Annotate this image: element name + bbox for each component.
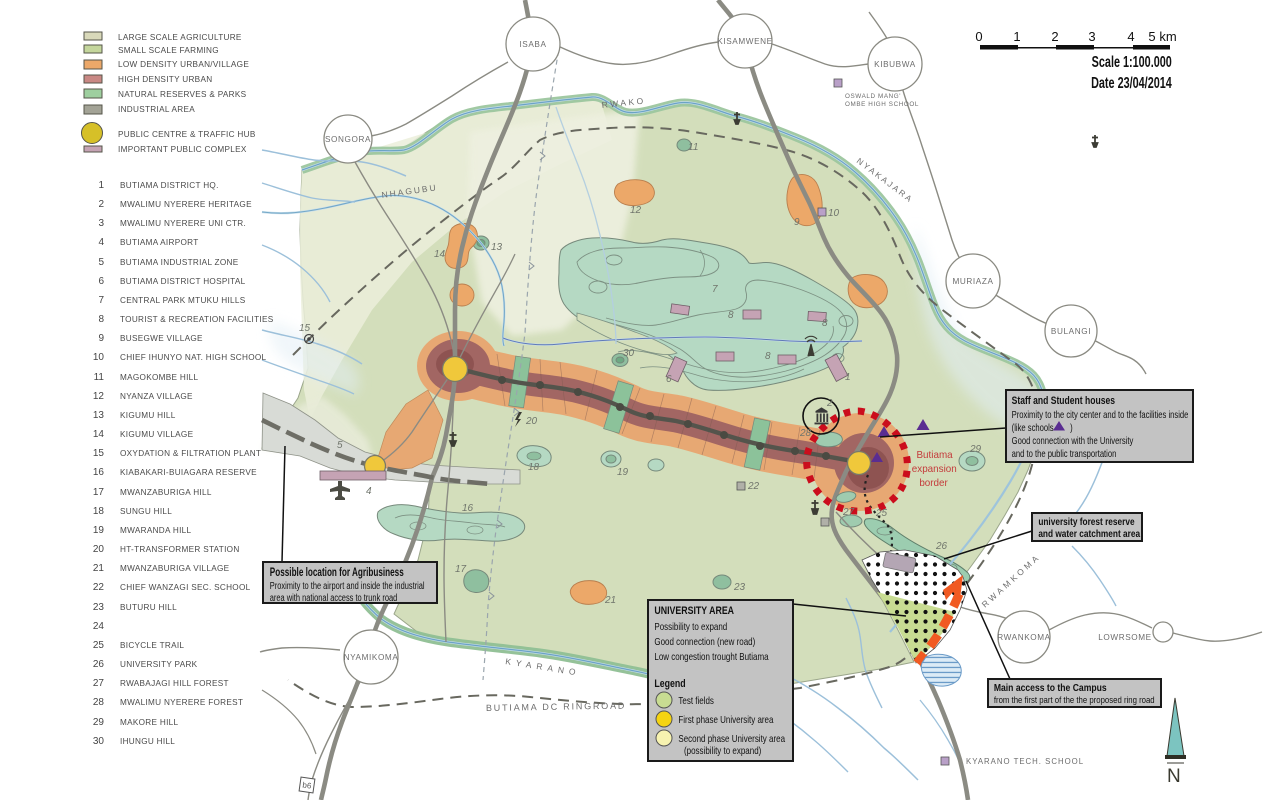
svg-text:BUTIAMA INDUSTRIAL ZONE: BUTIAMA INDUSTRIAL ZONE: [120, 258, 239, 267]
svg-text:0: 0: [975, 29, 982, 44]
svg-text:13: 13: [491, 242, 503, 253]
svg-text:BUTIAMA AIRPORT: BUTIAMA AIRPORT: [120, 238, 199, 247]
svg-text:20: 20: [93, 544, 105, 555]
svg-text:TOURIST & RECREATION FACILITIE: TOURIST & RECREATION FACILITIES: [120, 315, 274, 324]
svg-text:1: 1: [98, 180, 104, 191]
svg-text:17: 17: [93, 487, 105, 498]
svg-text:SONGORA: SONGORA: [325, 135, 371, 144]
svg-text:16: 16: [93, 467, 105, 478]
svg-text:25: 25: [875, 508, 888, 519]
svg-text:Date 23/04/2014: Date 23/04/2014: [1091, 74, 1172, 91]
svg-text:MAKORE HILL: MAKORE HILL: [120, 718, 179, 727]
svg-text:PUBLIC CENTRE & TRAFFIC HUB: PUBLIC CENTRE & TRAFFIC HUB: [118, 130, 256, 139]
svg-text:Good connection (new road): Good connection (new road): [654, 636, 755, 647]
svg-text:5: 5: [98, 257, 104, 268]
svg-text:Legend: Legend: [654, 678, 685, 690]
svg-text:Proximity to the city center a: Proximity to the city center and to the …: [1012, 409, 1189, 420]
svg-text:MWALIMU NYERERE FOREST: MWALIMU NYERERE FOREST: [120, 698, 243, 707]
svg-text:19: 19: [617, 467, 629, 478]
svg-text:IMPORTANT PUBLIC COMPLEX: IMPORTANT PUBLIC COMPLEX: [118, 145, 247, 154]
svg-text:22: 22: [93, 582, 105, 593]
svg-text:14: 14: [93, 429, 105, 440]
svg-text:b6: b6: [302, 780, 313, 790]
svg-text:21: 21: [93, 563, 105, 574]
svg-text:Scale 1:100.000: Scale 1:100.000: [1092, 53, 1172, 70]
svg-text:1: 1: [845, 372, 851, 383]
svg-text:20: 20: [525, 416, 538, 427]
svg-text:and water catchment area: and water catchment area: [1038, 528, 1141, 539]
svg-text:9: 9: [794, 217, 800, 228]
svg-text:Second phase University area: Second phase University area: [678, 733, 785, 744]
svg-text:11: 11: [94, 372, 105, 383]
svg-text:Test fields: Test fields: [678, 695, 714, 706]
svg-text:8: 8: [765, 351, 771, 362]
svg-text:28: 28: [799, 428, 812, 439]
svg-text:ISABA: ISABA: [519, 40, 546, 49]
svg-text:BICYCLE TRAIL: BICYCLE TRAIL: [120, 641, 184, 650]
svg-text:19: 19: [93, 525, 105, 536]
svg-text:12: 12: [93, 391, 105, 402]
svg-text:8: 8: [728, 310, 734, 321]
svg-text:First phase University area: First phase University area: [678, 714, 774, 725]
svg-text:UNIVERSITY PARK: UNIVERSITY PARK: [120, 660, 198, 669]
svg-text:8: 8: [822, 318, 828, 329]
svg-text:MWALIMU NYERERE HERITAGE: MWALIMU NYERERE HERITAGE: [120, 200, 252, 209]
svg-text:BUSEGWE VILLAGE: BUSEGWE VILLAGE: [120, 334, 203, 343]
svg-text:3: 3: [98, 218, 104, 229]
svg-text:from the first part of the the: from the first part of the the proposed …: [994, 694, 1155, 705]
svg-text:4: 4: [366, 486, 372, 497]
svg-text:12: 12: [630, 205, 642, 216]
svg-text:26: 26: [935, 541, 948, 552]
svg-text:29: 29: [93, 717, 105, 728]
svg-text:INDUSTRIAL AREA: INDUSTRIAL AREA: [118, 105, 195, 114]
svg-text:area with national access to t: area with national access to trunk road: [270, 592, 397, 604]
svg-text:UNIVERSITY AREA: UNIVERSITY AREA: [654, 605, 734, 617]
svg-text:3: 3: [1088, 29, 1095, 44]
svg-text:NYANZA VILLAGE: NYANZA VILLAGE: [120, 392, 193, 401]
svg-text:24: 24: [93, 621, 105, 632]
svg-text:21: 21: [604, 595, 616, 606]
svg-text:LOWRSOME: LOWRSOME: [1098, 633, 1151, 642]
svg-text:OXYDATION & FILTRATION PLANT: OXYDATION & FILTRATION PLANT: [120, 449, 261, 458]
svg-text:10: 10: [828, 208, 840, 219]
svg-text:2: 2: [98, 199, 104, 210]
svg-text:18: 18: [528, 462, 540, 473]
svg-text:15: 15: [299, 323, 311, 334]
svg-text:LOW DENSITY URBAN/VILLAGE: LOW DENSITY URBAN/VILLAGE: [118, 60, 249, 69]
svg-text:1: 1: [1013, 29, 1020, 44]
svg-text:6: 6: [666, 374, 672, 385]
svg-text:CHIEF IHUNYO NAT. HIGH SCHOOL: CHIEF IHUNYO NAT. HIGH SCHOOL: [120, 353, 267, 362]
svg-text:SUNGU HILL: SUNGU HILL: [120, 507, 172, 516]
svg-text:(possibility to expand): (possibility to expand): [684, 745, 761, 756]
svg-text:km: km: [1159, 29, 1176, 44]
svg-text:MWANZABURIGA HILL: MWANZABURIGA HILL: [120, 488, 212, 497]
svg-text:18: 18: [93, 506, 105, 517]
svg-text:7: 7: [712, 284, 718, 295]
svg-text:Possibility to expand: Possibility to expand: [654, 621, 727, 632]
svg-text:NYAMIKOMA: NYAMIKOMA: [344, 653, 399, 662]
svg-text:2: 2: [1051, 29, 1058, 44]
svg-text:SMALL SCALE FARMING: SMALL SCALE FARMING: [118, 46, 219, 55]
svg-text:MWALIMU NYERERE UNI CTR.: MWALIMU NYERERE UNI CTR.: [120, 219, 246, 228]
svg-text:MWANZABURIGA VILLAGE: MWANZABURIGA VILLAGE: [120, 564, 230, 573]
svg-text:23: 23: [93, 602, 105, 613]
svg-text:23: 23: [733, 582, 746, 593]
svg-text:Butiama: Butiama: [917, 450, 953, 461]
svg-text:MWARANDA HILL: MWARANDA HILL: [120, 526, 192, 535]
svg-text:28: 28: [93, 697, 105, 708]
svg-text:10: 10: [93, 352, 105, 363]
svg-text:Main access to the Campus: Main access to the Campus: [994, 682, 1107, 694]
svg-text:MAGOKOMBE HILL: MAGOKOMBE HILL: [120, 373, 199, 382]
svg-text:Proximity to the airport and i: Proximity to the airport and inside the …: [270, 580, 425, 592]
svg-text:27: 27: [842, 507, 855, 518]
svg-text:5: 5: [1148, 29, 1155, 44]
svg-text:OSWALD MANG': OSWALD MANG': [845, 93, 901, 100]
svg-text:Good connection with the Unive: Good connection with the University: [1012, 435, 1134, 446]
svg-text:BUTIAMA DISTRICT HOSPITAL: BUTIAMA DISTRICT HOSPITAL: [120, 277, 246, 286]
svg-text:4: 4: [1127, 29, 1134, 44]
svg-text:KIGUMU HILL: KIGUMU HILL: [120, 411, 176, 420]
svg-text:Staff and Student houses: Staff and Student houses: [1012, 395, 1116, 407]
svg-text:14: 14: [434, 249, 446, 260]
svg-text:5: 5: [337, 440, 343, 451]
svg-text:25: 25: [93, 640, 105, 651]
svg-text:RWABAJAGI HILL FOREST: RWABAJAGI HILL FOREST: [120, 679, 229, 688]
svg-text:N: N: [1167, 766, 1181, 787]
svg-text:border: border: [919, 478, 948, 489]
svg-text:(like schools: (like schools: [1012, 422, 1054, 433]
svg-text:15: 15: [93, 448, 105, 459]
svg-text:NATURAL RESERVES & PARKS: NATURAL RESERVES & PARKS: [118, 90, 247, 99]
svg-text:13: 13: [93, 410, 105, 421]
svg-text:9: 9: [98, 333, 104, 344]
svg-text:11: 11: [688, 142, 698, 153]
svg-text:Low congestion trought Butiama: Low congestion trought Butiama: [654, 651, 769, 662]
svg-text:KIBUBWA: KIBUBWA: [874, 60, 916, 69]
svg-text:Possible location for Agribusi: Possible location for Agribusiness: [270, 567, 404, 580]
svg-text:MURIAZA: MURIAZA: [952, 277, 993, 286]
svg-text:RWANKOMA: RWANKOMA: [997, 633, 1050, 642]
svg-text:KIGUMU VILLAGE: KIGUMU VILLAGE: [120, 430, 194, 439]
svg-text:6: 6: [98, 276, 104, 287]
svg-text:4: 4: [98, 237, 104, 248]
svg-text:BUTURU HILL: BUTURU HILL: [120, 603, 177, 612]
svg-text:2: 2: [826, 398, 833, 409]
svg-text:17: 17: [455, 564, 467, 575]
svg-text:HIGH DENSITY URBAN: HIGH DENSITY URBAN: [118, 75, 212, 84]
svg-text:CHIEF WANZAGI SEC. SCHOOL: CHIEF WANZAGI SEC. SCHOOL: [120, 583, 251, 592]
svg-text:OMBE HIGH SCHOOL: OMBE HIGH SCHOOL: [845, 101, 919, 108]
svg-text:KISAMWENE: KISAMWENE: [717, 37, 772, 46]
svg-text:HT-TRANSFORMER STATION: HT-TRANSFORMER STATION: [120, 545, 240, 554]
svg-text:KYARANO TECH. SCHOOL: KYARANO TECH. SCHOOL: [966, 757, 1084, 766]
svg-text:IHUNGU HILL: IHUNGU HILL: [120, 737, 175, 746]
svg-text:7: 7: [98, 295, 104, 306]
svg-text:27: 27: [93, 678, 105, 689]
svg-text:22: 22: [747, 481, 760, 492]
svg-text:30: 30: [93, 736, 105, 747]
svg-text:29: 29: [969, 444, 982, 455]
svg-text:and to the public transportati: and to the public transportation: [1012, 448, 1117, 459]
svg-text:CENTRAL PARK MTUKU HILLS: CENTRAL PARK MTUKU HILLS: [120, 296, 246, 305]
svg-text:expansion: expansion: [912, 464, 957, 475]
svg-text:BULANGI: BULANGI: [1051, 327, 1091, 336]
svg-text:KIABAKARI-BUIAGARA RESERVE: KIABAKARI-BUIAGARA RESERVE: [120, 468, 257, 477]
svg-text:16: 16: [462, 503, 474, 514]
svg-text:university forest reserve: university forest reserve: [1038, 516, 1134, 527]
svg-text:30: 30: [623, 348, 635, 359]
svg-text:8: 8: [98, 314, 104, 325]
svg-text:): ): [1070, 422, 1073, 433]
svg-text:BUTIAMA DISTRICT HQ.: BUTIAMA DISTRICT HQ.: [120, 181, 219, 190]
svg-text:LARGE SCALE AGRICULTURE: LARGE SCALE AGRICULTURE: [118, 33, 242, 42]
svg-text:26: 26: [93, 659, 105, 670]
